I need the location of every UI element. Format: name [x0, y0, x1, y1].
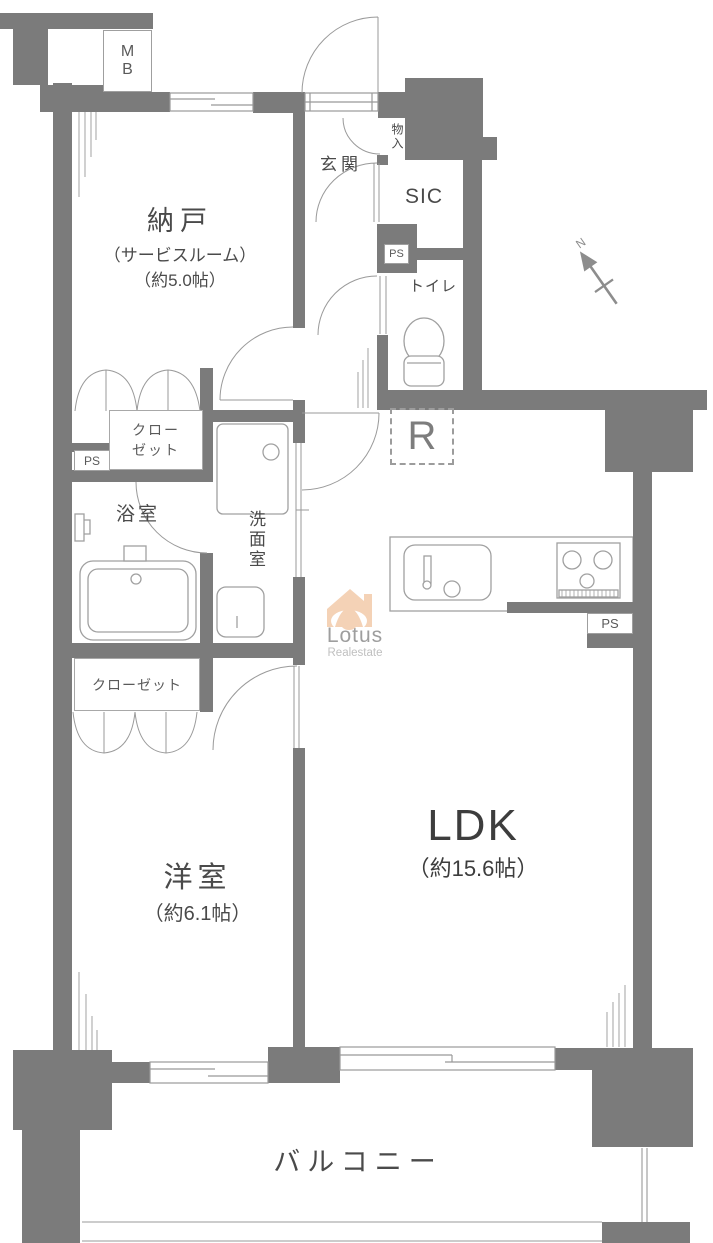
- youshitsu-door-arc: [213, 666, 299, 750]
- closet-lower-box: クローゼット: [74, 658, 200, 711]
- monoire-door-arc: [343, 118, 380, 154]
- refrigerator-space: R: [390, 408, 454, 465]
- nando-alias: （サービスルーム）: [75, 245, 285, 266]
- bath-label: 浴室: [76, 503, 200, 527]
- ldk-size: （約15.6帖）: [363, 855, 583, 883]
- closet-upper-box: クロー ゼット: [109, 410, 203, 470]
- meter-box-label-2: B: [122, 61, 133, 79]
- toilet-fixture: [404, 318, 444, 386]
- compass-icon: [571, 245, 626, 310]
- youshitsu-size: （約6.1帖）: [90, 902, 305, 927]
- stove-icon: [557, 543, 620, 598]
- ldk-balcony-window: [340, 1047, 555, 1070]
- pipe-space-kitchen: PS: [587, 613, 633, 634]
- ldk-door-arc: [302, 413, 379, 490]
- floor-plan: M B PS PS PS R クロー ゼット クローゼット 納戸 （サービスルー…: [0, 0, 713, 1243]
- nando-room-label: 納戸 （サービスルーム） （約5.0帖）: [75, 205, 285, 291]
- entry-door-arc: [302, 17, 378, 93]
- genkan-label: 玄関: [302, 154, 380, 175]
- sic-label: SIC: [385, 184, 463, 210]
- monoire-label: 物入: [381, 116, 404, 158]
- entry-door-sill: [305, 93, 378, 111]
- closet-upper-label-1: クロー: [132, 420, 180, 440]
- meter-box-label-1: M: [121, 43, 134, 61]
- nando-size: （約5.0帖）: [75, 270, 285, 291]
- pipe-space-left: PS: [74, 450, 110, 471]
- meter-box: M B: [103, 30, 152, 92]
- watermark-suffix: Realestate: [318, 646, 392, 660]
- senmenshitsu-label: 洗面室: [236, 497, 266, 583]
- balcony-label: バルコニー: [248, 1146, 468, 1180]
- toilet-door-arc: [318, 276, 386, 335]
- closet-upper-label-2: ゼット: [132, 440, 180, 460]
- nando-window: [170, 93, 253, 111]
- bathtub-fixture: [75, 514, 196, 640]
- kitchen-counter-fixture: [390, 537, 633, 611]
- nando-door-arc: [220, 327, 293, 400]
- youshitsu-room-label: 洋室 （約6.1帖）: [90, 860, 305, 927]
- toilet-label: トイレ: [388, 278, 478, 297]
- ldk-name: LDK: [363, 798, 583, 853]
- youshitsu-window: [150, 1062, 268, 1083]
- pipe-space-sic: PS: [384, 244, 409, 264]
- nando-name: 納戸: [75, 205, 285, 239]
- senmen-sliding-door: [296, 443, 309, 577]
- ldk-room-label: LDK （約15.6帖）: [363, 798, 583, 883]
- youshitsu-name: 洋室: [90, 860, 305, 896]
- washbasin-icon: [217, 587, 264, 637]
